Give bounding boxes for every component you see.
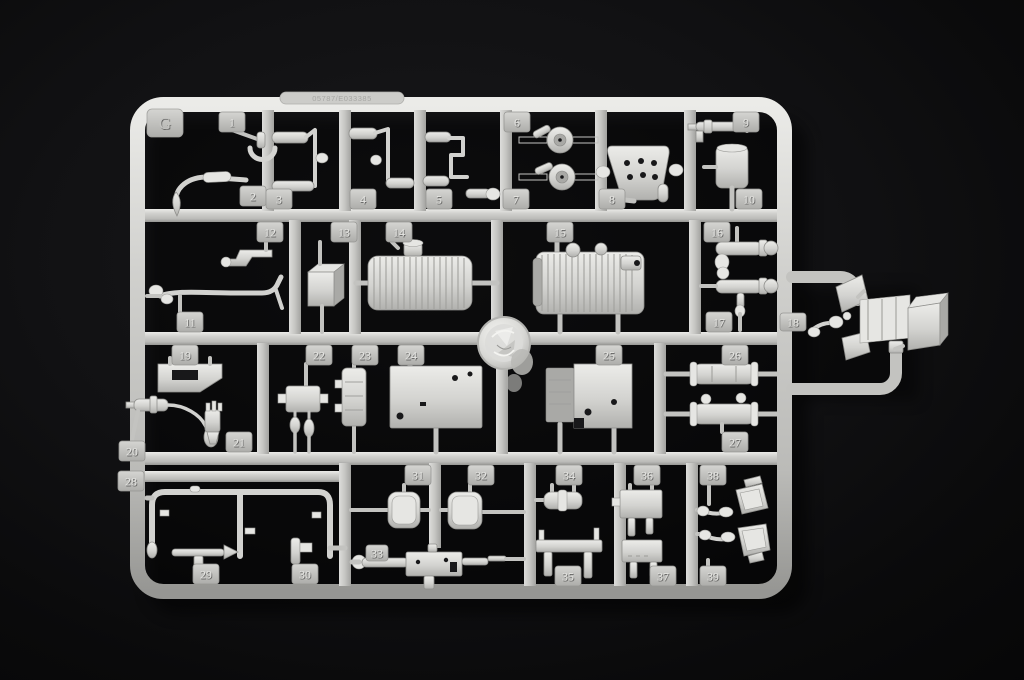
tab-number: 28 <box>125 475 137 489</box>
tab-37: 37 <box>650 566 676 586</box>
tab-38: 38 <box>700 465 726 485</box>
tab-3: 3 <box>266 189 292 209</box>
tab-19: 19 <box>172 345 198 365</box>
tab-number: 39 <box>707 570 719 584</box>
tab-7: 7 <box>503 189 529 209</box>
tab-number: 38 <box>707 469 719 483</box>
tab-number: 22 <box>313 349 325 363</box>
tab-number: 27 <box>729 436 741 450</box>
tab-10: 10 <box>736 189 762 209</box>
tab-number: 5 <box>436 193 442 207</box>
tab-20: 20 <box>119 441 145 461</box>
tab-23: 23 <box>352 345 378 365</box>
tab-number: 30 <box>299 568 311 582</box>
tab-35: 35 <box>555 566 581 586</box>
tab-number: 12 <box>264 226 276 240</box>
tab-number: 20 <box>126 445 138 459</box>
tab-number: 35 <box>562 570 574 584</box>
tab-number: 19 <box>179 349 191 363</box>
tab-number: 37 <box>657 570 669 584</box>
tab-30: 30 <box>292 564 318 584</box>
tab-number: 6 <box>514 116 520 130</box>
mold-stamp-text: 05787/E033385 <box>312 94 371 103</box>
mold-stamp: 05787/E033385 <box>280 92 404 104</box>
tab-number: 11 <box>184 316 196 330</box>
tab-22: 22 <box>306 345 332 365</box>
tab-number: 26 <box>729 349 741 363</box>
tab-number: 18 <box>787 316 799 330</box>
tab-number: 33 <box>371 547 383 561</box>
tab-number: 25 <box>603 349 615 363</box>
tab-number: 17 <box>713 316 725 330</box>
tab-number: 8 <box>609 193 615 207</box>
tab-number: 7 <box>513 193 519 207</box>
tab-31: 31 <box>405 465 431 485</box>
tab-number: 9 <box>743 116 749 130</box>
tab-number: 14 <box>393 226 405 240</box>
tab-number: 1 <box>229 116 235 130</box>
tab-6: 6 <box>504 112 530 132</box>
tab-12: 12 <box>257 222 283 242</box>
tab-15: 15 <box>547 222 573 242</box>
tab-number: 31 <box>412 469 424 483</box>
horizontal-runner-2 <box>145 332 777 345</box>
horizontal-runner-1 <box>145 209 777 222</box>
photo-of-model-kit-sprue: G 05787/E033385 <box>0 0 1024 680</box>
tab-number: 29 <box>200 568 212 582</box>
tab-number: 36 <box>641 469 653 483</box>
tab-13: 13 <box>331 222 357 242</box>
tab-number: 34 <box>563 469 575 483</box>
tab-number: 24 <box>405 349 417 363</box>
tab-34: 34 <box>556 465 582 485</box>
tab-number: 21 <box>233 436 245 450</box>
tab-5: 5 <box>426 189 452 209</box>
tab-32: 32 <box>468 465 494 485</box>
sprue-scene: G 05787/E033385 <box>0 0 1024 680</box>
tab-21: 21 <box>226 432 252 452</box>
tab-number: 3 <box>276 193 282 207</box>
tab-number: 23 <box>359 349 371 363</box>
tab-28: 28 <box>118 471 144 491</box>
tab-number: 16 <box>711 226 723 240</box>
tab-27: 27 <box>722 432 748 452</box>
tab-25: 25 <box>596 345 622 365</box>
tab-16: 16 <box>704 222 730 242</box>
horizontal-runner-3 <box>145 452 777 465</box>
tab-36: 36 <box>634 465 660 485</box>
tab-number: 15 <box>554 226 566 240</box>
tab-39: 39 <box>700 566 726 586</box>
tab-8: 8 <box>599 189 625 209</box>
gate-letter-tab: G <box>147 109 183 137</box>
tab-number: 32 <box>475 469 487 483</box>
tab-number: 4 <box>360 193 366 207</box>
gate-letter: G <box>159 114 171 133</box>
horizontal-runner-3b <box>145 471 351 482</box>
tab-14: 14 <box>386 222 412 242</box>
tab-number: 13 <box>338 226 350 240</box>
tab-number: 2 <box>250 190 256 204</box>
tab-24: 24 <box>398 345 424 365</box>
tab-29: 29 <box>193 564 219 584</box>
tab-2: 2 <box>240 186 266 206</box>
tab-9: 9 <box>733 112 759 132</box>
tab-4: 4 <box>350 189 376 209</box>
tab-11: 11 <box>177 312 203 332</box>
tab-33: 33 <box>366 545 388 561</box>
tab-1: 1 <box>219 112 245 132</box>
tab-26: 26 <box>722 345 748 365</box>
tab-number: 10 <box>743 193 755 207</box>
tab-18: 18 <box>780 313 806 331</box>
tab-17: 17 <box>706 312 732 332</box>
